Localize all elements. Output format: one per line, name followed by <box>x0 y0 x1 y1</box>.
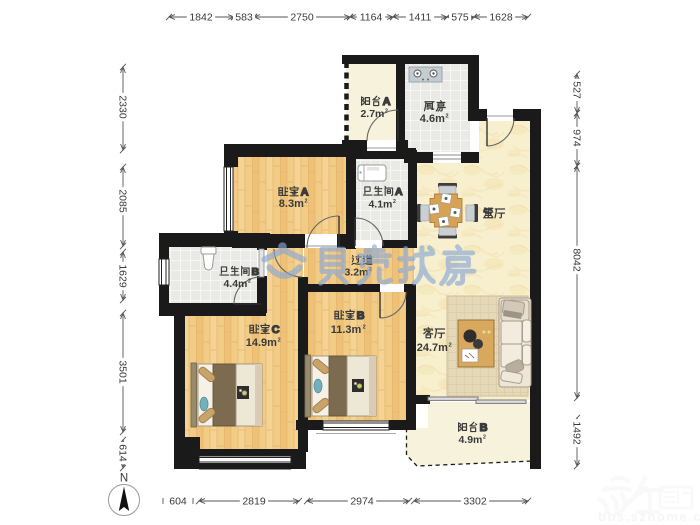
svg-text:2: 2 <box>305 199 308 205</box>
svg-text:1629: 1629 <box>116 264 128 288</box>
svg-text:2: 2 <box>446 114 449 120</box>
svg-text:4.4m: 4.4m <box>223 278 247 290</box>
svg-text:3501: 3501 <box>116 360 128 384</box>
svg-text:1628: 1628 <box>489 12 513 24</box>
svg-text:2: 2 <box>363 325 366 331</box>
svg-text:604: 604 <box>169 496 187 508</box>
svg-text:2330: 2330 <box>116 95 128 119</box>
svg-text:4.1m: 4.1m <box>368 198 392 210</box>
svg-text:11.3m: 11.3m <box>331 324 362 336</box>
svg-text:N: N <box>120 473 128 485</box>
svg-text:8.3m: 8.3m <box>279 198 304 210</box>
svg-text:2085: 2085 <box>116 189 128 213</box>
svg-text:3302: 3302 <box>463 496 487 508</box>
svg-text:575: 575 <box>451 12 469 24</box>
svg-text:2: 2 <box>393 199 396 205</box>
svg-text:8042: 8042 <box>570 248 582 272</box>
svg-text:974: 974 <box>570 129 582 147</box>
svg-text:1492: 1492 <box>570 421 582 445</box>
svg-text:4.6m: 4.6m <box>420 113 445 125</box>
svg-text:2: 2 <box>385 109 388 115</box>
svg-text:2974: 2974 <box>350 496 374 508</box>
svg-text:A: A <box>301 186 309 198</box>
svg-text:2819: 2819 <box>242 496 266 508</box>
svg-text:2: 2 <box>483 435 486 441</box>
svg-text:B: B <box>480 422 488 434</box>
svg-text:2: 2 <box>449 343 452 349</box>
svg-text:614: 614 <box>116 444 128 462</box>
svg-text:B: B <box>357 310 365 322</box>
svg-text:2: 2 <box>278 338 281 344</box>
svg-text:14.9m: 14.9m <box>246 337 277 349</box>
svg-text:2.7m: 2.7m <box>360 108 384 120</box>
svg-text:4.9m: 4.9m <box>458 434 482 446</box>
svg-text:1411: 1411 <box>409 12 432 24</box>
svg-text:B: B <box>251 266 259 278</box>
svg-text:583: 583 <box>235 12 253 24</box>
svg-text:2750: 2750 <box>290 12 314 24</box>
svg-text:1164: 1164 <box>360 12 383 24</box>
svg-text:A: A <box>383 96 391 108</box>
svg-text:527: 527 <box>570 81 582 99</box>
svg-text:bbs.szhome.com: bbs.szhome.com <box>598 509 700 524</box>
svg-text:24.7m: 24.7m <box>417 342 448 354</box>
svg-text:C: C <box>272 324 280 336</box>
svg-text:A: A <box>395 186 403 198</box>
svg-text:2: 2 <box>248 279 251 285</box>
svg-text:1842: 1842 <box>189 12 213 24</box>
